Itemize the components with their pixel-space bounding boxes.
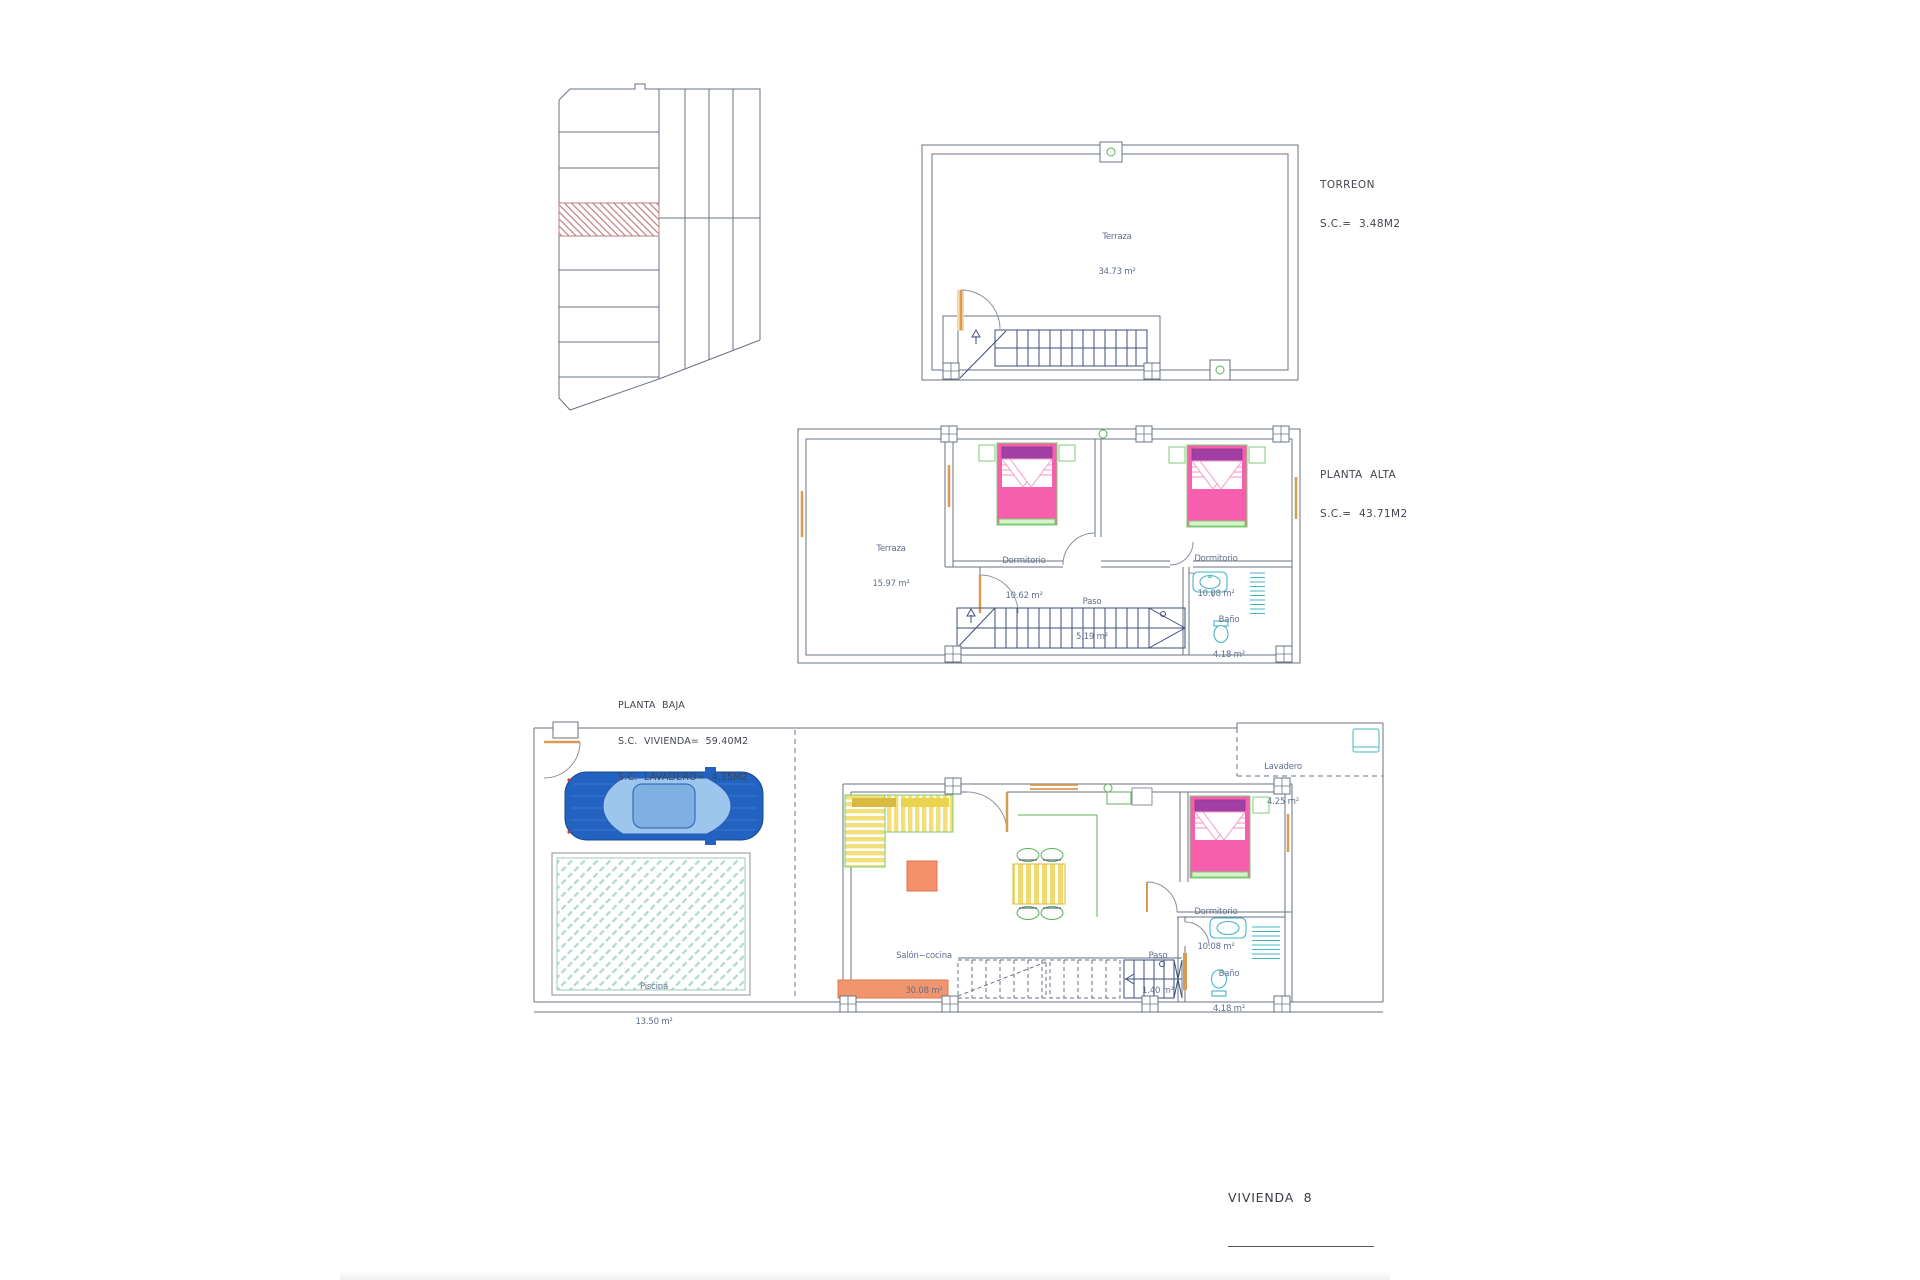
planta-alta-title: PLANTA ALTA: [1320, 469, 1408, 482]
drain-icon: [1099, 430, 1107, 438]
room-label-pa-terraza: Terraza 15.97 m²: [821, 521, 961, 602]
room-name: Dormitorio: [954, 556, 1094, 568]
room-name: Terraza: [1047, 232, 1187, 244]
room-name: Salón−cocina: [854, 951, 994, 963]
room-name: Piscina: [584, 982, 724, 994]
sofa-icon: [845, 795, 953, 867]
room-area: 15.97 m²: [821, 579, 961, 591]
planta-alta-heading: PLANTA ALTA S.C.= 43.71M2: [1320, 443, 1408, 534]
room-area: 5.19 m²: [1022, 632, 1162, 644]
room-label-pb-bano: Baño 4.18 m²: [1159, 946, 1299, 1027]
dining-table-icon: [1013, 849, 1065, 920]
room-area: 34.73 m²: [1047, 267, 1187, 279]
washing-machine-icon: [1353, 729, 1379, 752]
room-label-pb-lavadero: Lavadero 4.25 m²: [1213, 739, 1353, 820]
room-label-pa-bano: Baño 4.18 m²: [1159, 592, 1299, 673]
floorplan-sheet: { "sheet": { "description": "Architectur…: [0, 0, 1920, 1280]
room-name: Dormitorio: [1146, 554, 1286, 566]
summary-underline: [1228, 1246, 1374, 1247]
torreon-area: S.C.= 3.48M2: [1320, 218, 1400, 231]
room-area: 4.25 m²: [1213, 797, 1353, 809]
site-plan-outline: [559, 84, 760, 410]
room-name: Paso: [1022, 597, 1162, 609]
planta-baja-sc-lavadero: S.C. LAVADERO= 4.35M2: [618, 772, 748, 784]
scan-edge-shadow: [340, 1271, 1390, 1280]
room-area: 4.18 m²: [1159, 650, 1299, 662]
vivienda-summary: VIVIENDA 8 Sup. parcela=129,00m2 Sup. co…: [1228, 1152, 1380, 1280]
room-label-torreon-terraza: Terraza 34.73 m²: [1047, 209, 1187, 290]
torreon-title: TORREON: [1320, 179, 1400, 192]
room-area: 13.50 m²: [584, 1017, 724, 1029]
room-label-pb-salon: Salón−cocina 30.08 m²: [854, 928, 994, 1009]
room-name: Dormitorio: [1146, 907, 1286, 919]
room-name: Baño: [1159, 615, 1299, 627]
planta-baja-heading: PLANTA BAJA S.C. VIVIENDA= 59.40M2 S.C. …: [618, 676, 748, 796]
room-name: Lavadero: [1213, 762, 1353, 774]
room-label-pb-piscina: Piscina 13.50 m²: [584, 959, 724, 1040]
room-area: 4.18 m²: [1159, 1004, 1299, 1016]
site-key-plan: [551, 73, 766, 418]
room-name: Terraza: [821, 544, 961, 556]
drain-icon: [1104, 784, 1112, 792]
coffee-table-icon: [907, 861, 937, 891]
entry-gate-door-icon: [544, 742, 580, 778]
room-label-pa-paso: Paso 5.19 m²: [1022, 574, 1162, 655]
planta-baja-sc-vivienda: S.C. VIVIENDA= 59.40M2: [618, 736, 748, 748]
room-name: Baño: [1159, 969, 1299, 981]
highlighted-parcel: [559, 203, 659, 236]
torreon-heading: TORREON S.C.= 3.48M2: [1320, 153, 1400, 244]
planta-alta-area: S.C.= 43.71M2: [1320, 508, 1408, 521]
stairs-icon: [960, 330, 1147, 378]
summary-title: VIVIENDA 8: [1228, 1190, 1380, 1205]
room-area: 30.08 m²: [854, 986, 994, 998]
bed-icon: [979, 443, 1265, 527]
door-icon: [957, 290, 1000, 331]
planta-baja-title: PLANTA BAJA: [618, 700, 748, 712]
